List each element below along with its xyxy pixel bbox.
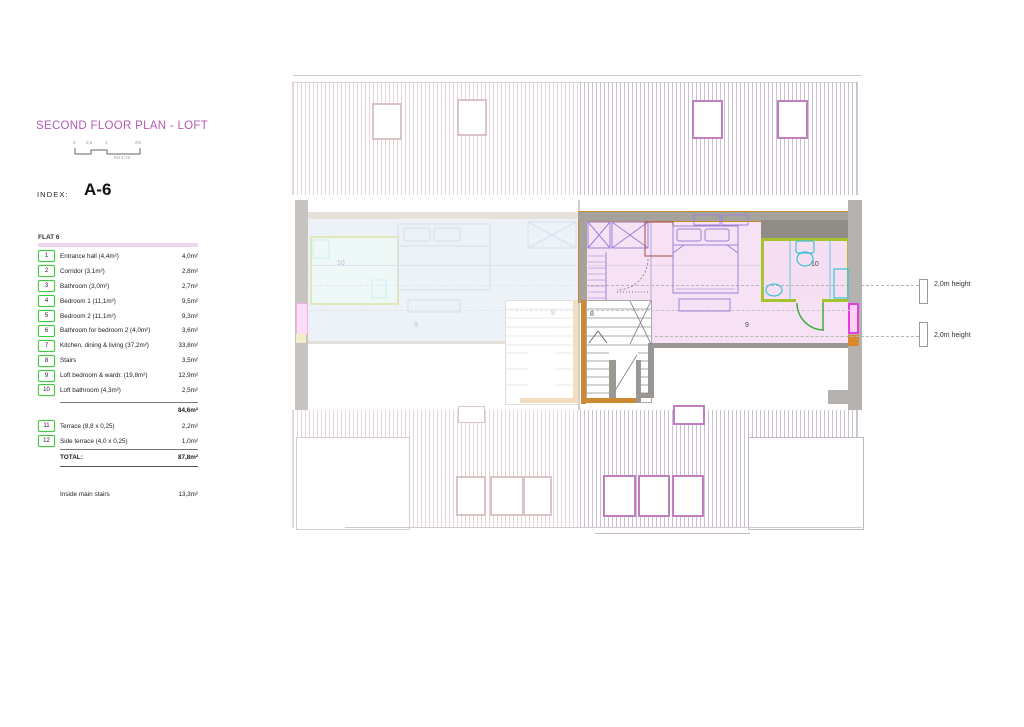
- skylight: [490, 476, 524, 516]
- skylight: [603, 475, 636, 517]
- adjacent-floor-line: [310, 265, 578, 266]
- room-label-stairs: 8: [590, 311, 594, 318]
- skylight: [672, 475, 704, 517]
- section-marker-upper: [919, 279, 928, 304]
- height-annotation-lower: 2,0m height: [934, 332, 971, 339]
- landing-wall: [637, 393, 654, 398]
- height-line-lower: [655, 336, 919, 337]
- roof-edge-strip: [857, 82, 870, 195]
- eaves-line-bottom: [345, 527, 862, 528]
- dormer-left: [296, 437, 410, 530]
- window-left: [296, 303, 308, 335]
- room-label-adjacent-loft: 9: [414, 322, 418, 329]
- roof-hatch-top-left: [293, 82, 580, 195]
- ridge-line: [586, 265, 761, 266]
- wall-end-left: [296, 390, 307, 404]
- roof-box: [458, 406, 485, 423]
- room9-step-wall: [648, 343, 654, 398]
- skylight: [638, 475, 670, 517]
- section-marker-lower: [919, 322, 928, 347]
- loft-stairs-room: [586, 300, 652, 403]
- eaves-line-bottom2: [595, 533, 750, 534]
- skylight: [457, 99, 487, 136]
- adjacent-stairs-bottom-wall: [520, 398, 578, 403]
- room-label-loft-bathroom: 10: [811, 261, 819, 268]
- room-label-loft-bedroom: 9: [745, 322, 749, 329]
- dormer-right: [748, 437, 864, 530]
- adjacent-stairs: [505, 300, 580, 405]
- adjacent-bathroom: [310, 236, 399, 305]
- skylight: [456, 476, 486, 516]
- height-line: [310, 310, 578, 311]
- stairs-bottom-wall: [581, 398, 639, 403]
- stairs-left-wall: [581, 300, 586, 404]
- adjacent-room-wall: [308, 341, 508, 344]
- bathroom-door-opening: [796, 298, 822, 303]
- skylight: [692, 100, 723, 139]
- room-label-adjacent-bathroom: 10: [337, 260, 345, 267]
- loft-left-wall: [578, 219, 587, 303]
- window-sill-left: [296, 334, 306, 343]
- height-line: [310, 285, 578, 286]
- height-line-upper: [586, 285, 919, 286]
- room-label-adjacent-stairs: 8: [551, 310, 555, 317]
- loft-bathroom: [761, 238, 850, 302]
- window-right: [848, 303, 859, 334]
- floor-plan: 10 9 8 8 9 10 2,0m height 2,0m height: [0, 0, 1024, 727]
- room9-bottom-wall: [652, 343, 852, 348]
- skylight: [777, 100, 808, 139]
- height-annotation-upper: 2,0m height: [934, 281, 971, 288]
- height-line-mid: [586, 310, 850, 311]
- adjacent-flat-top-wall: [308, 212, 578, 219]
- roof-box-highlight: [673, 405, 705, 425]
- wall-end-right: [828, 390, 852, 404]
- skylight: [372, 103, 402, 140]
- skylight: [523, 476, 552, 516]
- wall-above-bathroom: [761, 220, 852, 238]
